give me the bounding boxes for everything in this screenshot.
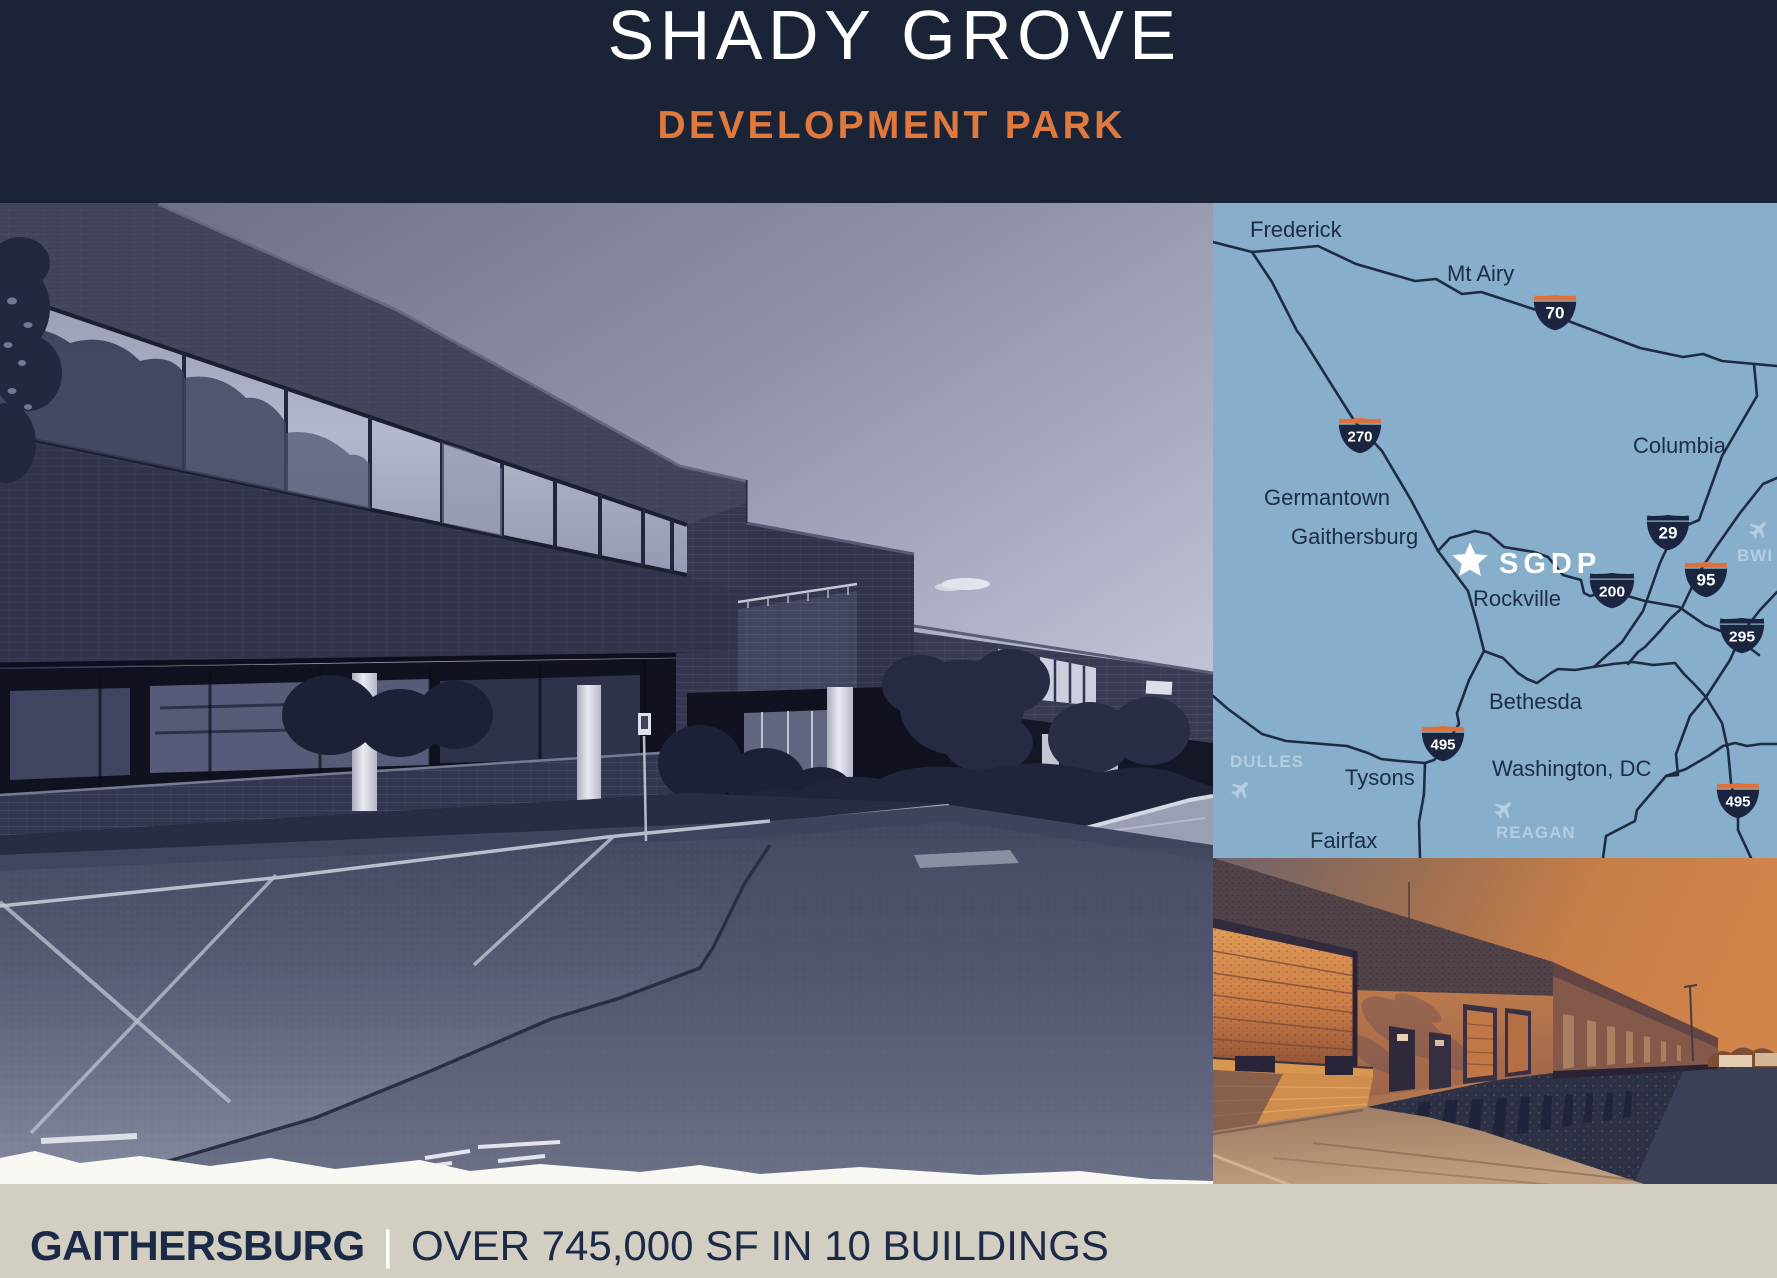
svg-text:495: 495 <box>1725 794 1750 811</box>
svg-text:200: 200 <box>1599 584 1625 601</box>
svg-text:Bethesda: Bethesda <box>1489 689 1583 714</box>
svg-text:DULLES: DULLES <box>1230 752 1304 771</box>
svg-text:Washington, DC: Washington, DC <box>1492 756 1651 781</box>
svg-text:Tysons: Tysons <box>1345 765 1415 790</box>
svg-text:Frederick: Frederick <box>1250 217 1343 242</box>
svg-text:295: 295 <box>1729 629 1756 646</box>
svg-text:Mt Airy: Mt Airy <box>1447 261 1514 286</box>
svg-text:Columbia: Columbia <box>1633 433 1727 458</box>
svg-text:95: 95 <box>1697 571 1716 590</box>
svg-text:SGDP: SGDP <box>1499 548 1601 580</box>
svg-text:Gaithersburg: Gaithersburg <box>1291 524 1418 549</box>
svg-text:Rockville: Rockville <box>1473 586 1561 611</box>
svg-text:29: 29 <box>1659 524 1678 543</box>
svg-text:270: 270 <box>1347 429 1372 446</box>
svg-text:BWI: BWI <box>1737 546 1773 565</box>
svg-text:REAGAN: REAGAN <box>1496 823 1576 842</box>
svg-text:70: 70 <box>1546 304 1565 323</box>
svg-text:Fairfax: Fairfax <box>1310 828 1377 853</box>
svg-text:Germantown: Germantown <box>1264 485 1390 510</box>
svg-text:495: 495 <box>1430 737 1455 754</box>
